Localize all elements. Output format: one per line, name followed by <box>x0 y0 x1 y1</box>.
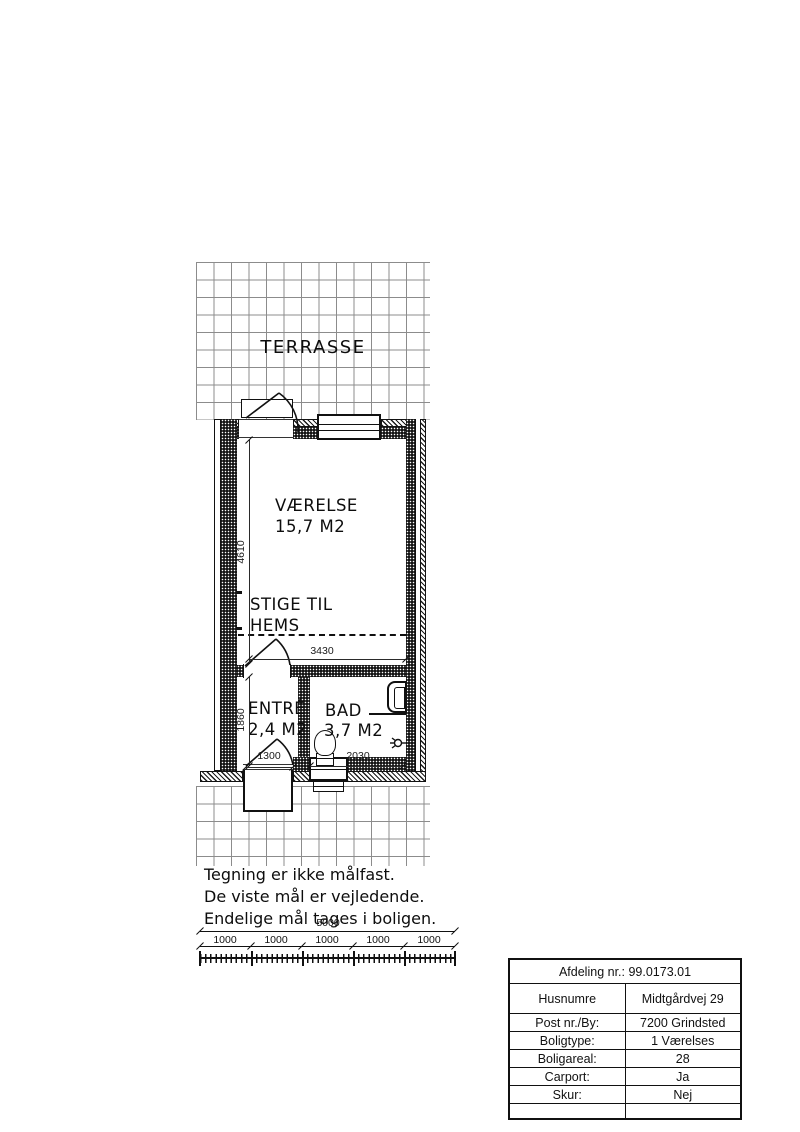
wall-right-inner-leaf <box>406 419 415 781</box>
row-label: Husnumre <box>509 984 625 1014</box>
table-row: Boligtype: 1 Værelses <box>509 1032 741 1050</box>
ruler-major-tick <box>302 951 304 966</box>
dim-line-bath-width <box>310 766 403 767</box>
loft-ladder-mark-1 <box>236 591 242 594</box>
scalebar-seg-label: 1000 <box>366 934 389 946</box>
room-bad-area: 3,7 M2 <box>324 721 383 740</box>
table-header-row: Afdeling nr.: 99.0173.01 <box>509 959 741 984</box>
wall-top-mid-outer <box>293 419 319 427</box>
ruler-major-tick <box>404 951 406 966</box>
dim-room-depth: 4610 <box>235 540 247 563</box>
scalebar-ruler-baseline <box>200 957 455 959</box>
ruler-major-tick <box>199 951 201 966</box>
wall-right-outer-leaf <box>420 419 426 781</box>
scalebar-segment-line <box>200 946 455 947</box>
loft-note-line2: HEMS <box>250 616 300 635</box>
row-value: 28 <box>625 1050 741 1068</box>
room-vaerelse-name: VÆRELSE <box>275 496 358 515</box>
room-entre-name: ENTRÉ <box>248 699 305 718</box>
wall-top-mid-inner <box>293 427 319 439</box>
row-label: Skur: <box>509 1086 625 1104</box>
row-label <box>509 1104 625 1120</box>
table-row: Post nr./By: 7200 Grindsted <box>509 1014 741 1032</box>
table-header: Afdeling nr.: 99.0173.01 <box>509 959 741 984</box>
scalebar-total-line <box>200 931 455 932</box>
floorplan-page: TERRASSE <box>0 0 800 1132</box>
row-value <box>625 1104 741 1120</box>
room-entre-area: 2,4 M2 <box>248 720 307 739</box>
row-label: Boligareal: <box>509 1050 625 1068</box>
row-label: Carport: <box>509 1068 625 1086</box>
bath-sink <box>387 681 407 713</box>
floor-drain-icon <box>390 738 407 748</box>
scalebar-seg-label: 1000 <box>315 934 338 946</box>
table-row: Husnumre Midtgårdvej 29 <box>509 984 741 1014</box>
room-bad-name: BAD <box>325 701 362 720</box>
table-row: Skur: Nej <box>509 1086 741 1104</box>
shower-screen-line <box>369 713 406 715</box>
terrace-door-leaf <box>241 399 293 418</box>
ruler-major-tick <box>251 951 253 966</box>
table-row: Boligareal: 28 <box>509 1050 741 1068</box>
dim-line-room-width <box>249 659 406 660</box>
row-value: Midtgårdvej 29 <box>625 984 741 1014</box>
info-table: Afdeling nr.: 99.0173.01 Husnumre Midtgå… <box>508 958 742 1120</box>
ruler-major-tick <box>454 951 456 966</box>
dim-bath-width: 2030 <box>346 750 369 762</box>
row-value: Ja <box>625 1068 741 1086</box>
row-value: Nej <box>625 1086 741 1104</box>
room-vaerelse-area: 15,7 M2 <box>275 517 345 536</box>
scalebar-total-label: 5000 <box>316 917 339 929</box>
note-line-1: Tegning er ikke målfast. <box>204 865 395 884</box>
entrance-stoop <box>243 770 293 812</box>
ruler-major-tick <box>353 951 355 966</box>
bath-window-sill <box>313 781 344 792</box>
loft-note-line1: STIGE TIL <box>250 595 333 614</box>
scalebar-seg-label: 1000 <box>417 934 440 946</box>
wall-bottom-left-outer <box>200 771 243 782</box>
dim-entry-width: 1300 <box>257 750 280 762</box>
note-line-2: De viste mål er vejledende. <box>204 887 424 906</box>
window-top <box>317 414 381 440</box>
row-label: Boligtype: <box>509 1032 625 1050</box>
table-row: Carport: Ja <box>509 1068 741 1086</box>
terrace-door-opening <box>239 419 293 438</box>
dim-line-entry-depth <box>249 677 250 766</box>
loft-ladder-mark-2 <box>236 627 242 630</box>
outdoor-paving-grid <box>196 786 430 866</box>
row-value: 1 Værelses <box>625 1032 741 1050</box>
dim-entry-depth: 1860 <box>235 708 247 731</box>
dim-line-room-depth <box>249 440 250 664</box>
dim-room-width: 3430 <box>310 645 333 657</box>
row-value: 7200 Grindsted <box>625 1014 741 1032</box>
table-row-empty <box>509 1104 741 1120</box>
terrace-label: TERRASSE <box>196 337 430 358</box>
scalebar-seg-label: 1000 <box>264 934 287 946</box>
scalebar-seg-label: 1000 <box>213 934 236 946</box>
dim-line-entry-width <box>246 767 293 768</box>
row-label: Post nr./By: <box>509 1014 625 1032</box>
wall-left-outer-leaf <box>214 419 221 771</box>
